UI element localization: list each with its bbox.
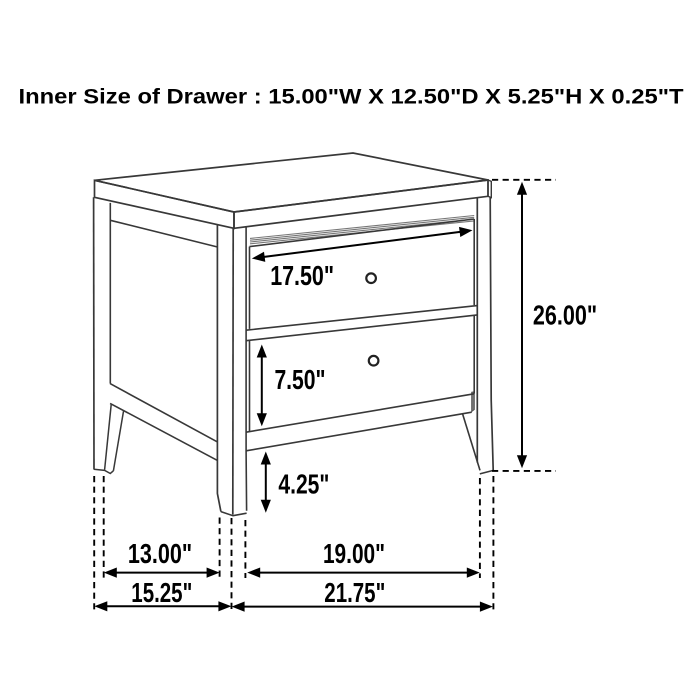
svg-text:4.25": 4.25" bbox=[278, 469, 329, 500]
svg-text:17.50": 17.50" bbox=[270, 260, 334, 291]
svg-text:7.50": 7.50" bbox=[274, 364, 325, 395]
svg-text:Inner Size of Drawer : 15.00"W: Inner Size of Drawer : 15.00"W X 12.50"D… bbox=[19, 84, 684, 109]
svg-text:21.75": 21.75" bbox=[324, 577, 385, 608]
svg-text:26.00": 26.00" bbox=[533, 300, 597, 331]
svg-text:19.00": 19.00" bbox=[323, 538, 385, 569]
svg-text:13.00": 13.00" bbox=[128, 538, 192, 569]
svg-text:15.25": 15.25" bbox=[131, 577, 192, 608]
